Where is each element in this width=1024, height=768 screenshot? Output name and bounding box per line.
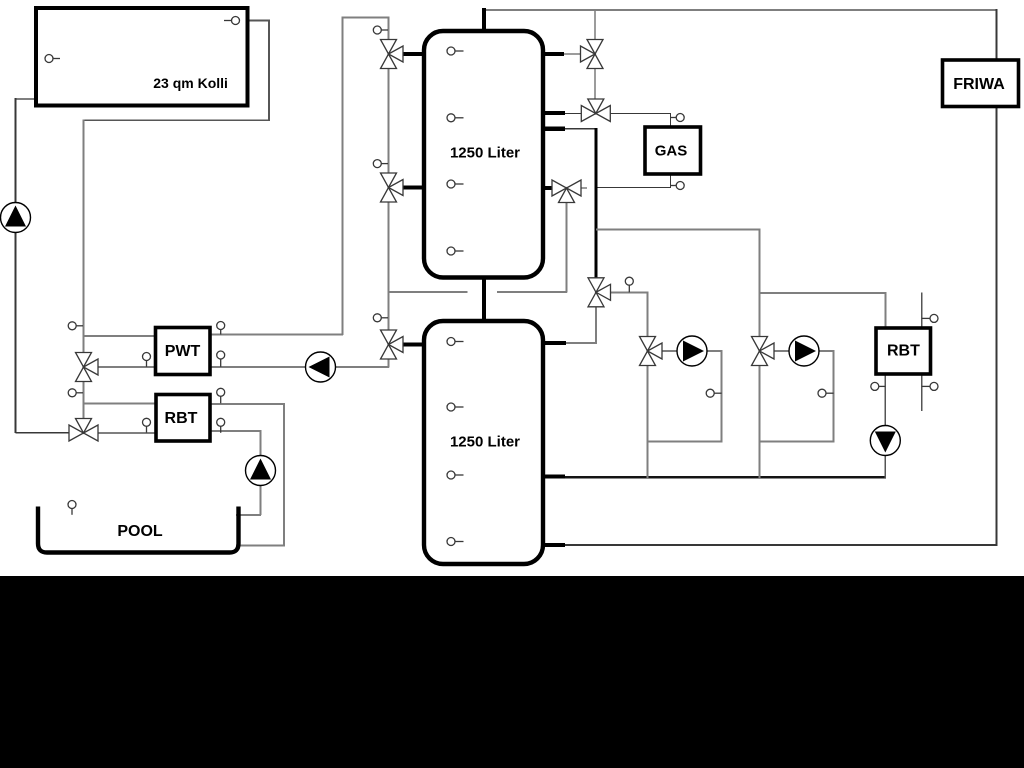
svg-text:POOL: POOL — [117, 523, 163, 540]
svg-text:RBT: RBT — [887, 343, 920, 360]
svg-text:1250 Liter: 1250 Liter — [450, 434, 520, 451]
svg-text:1250 Liter: 1250 Liter — [450, 145, 520, 162]
svg-text:FRIWA: FRIWA — [953, 76, 1005, 93]
svg-text:RBT: RBT — [165, 410, 198, 427]
svg-text:23 qm Kolli: 23 qm Kolli — [153, 75, 228, 91]
svg-text:GAS: GAS — [655, 143, 688, 160]
svg-text:PWT: PWT — [165, 343, 201, 360]
